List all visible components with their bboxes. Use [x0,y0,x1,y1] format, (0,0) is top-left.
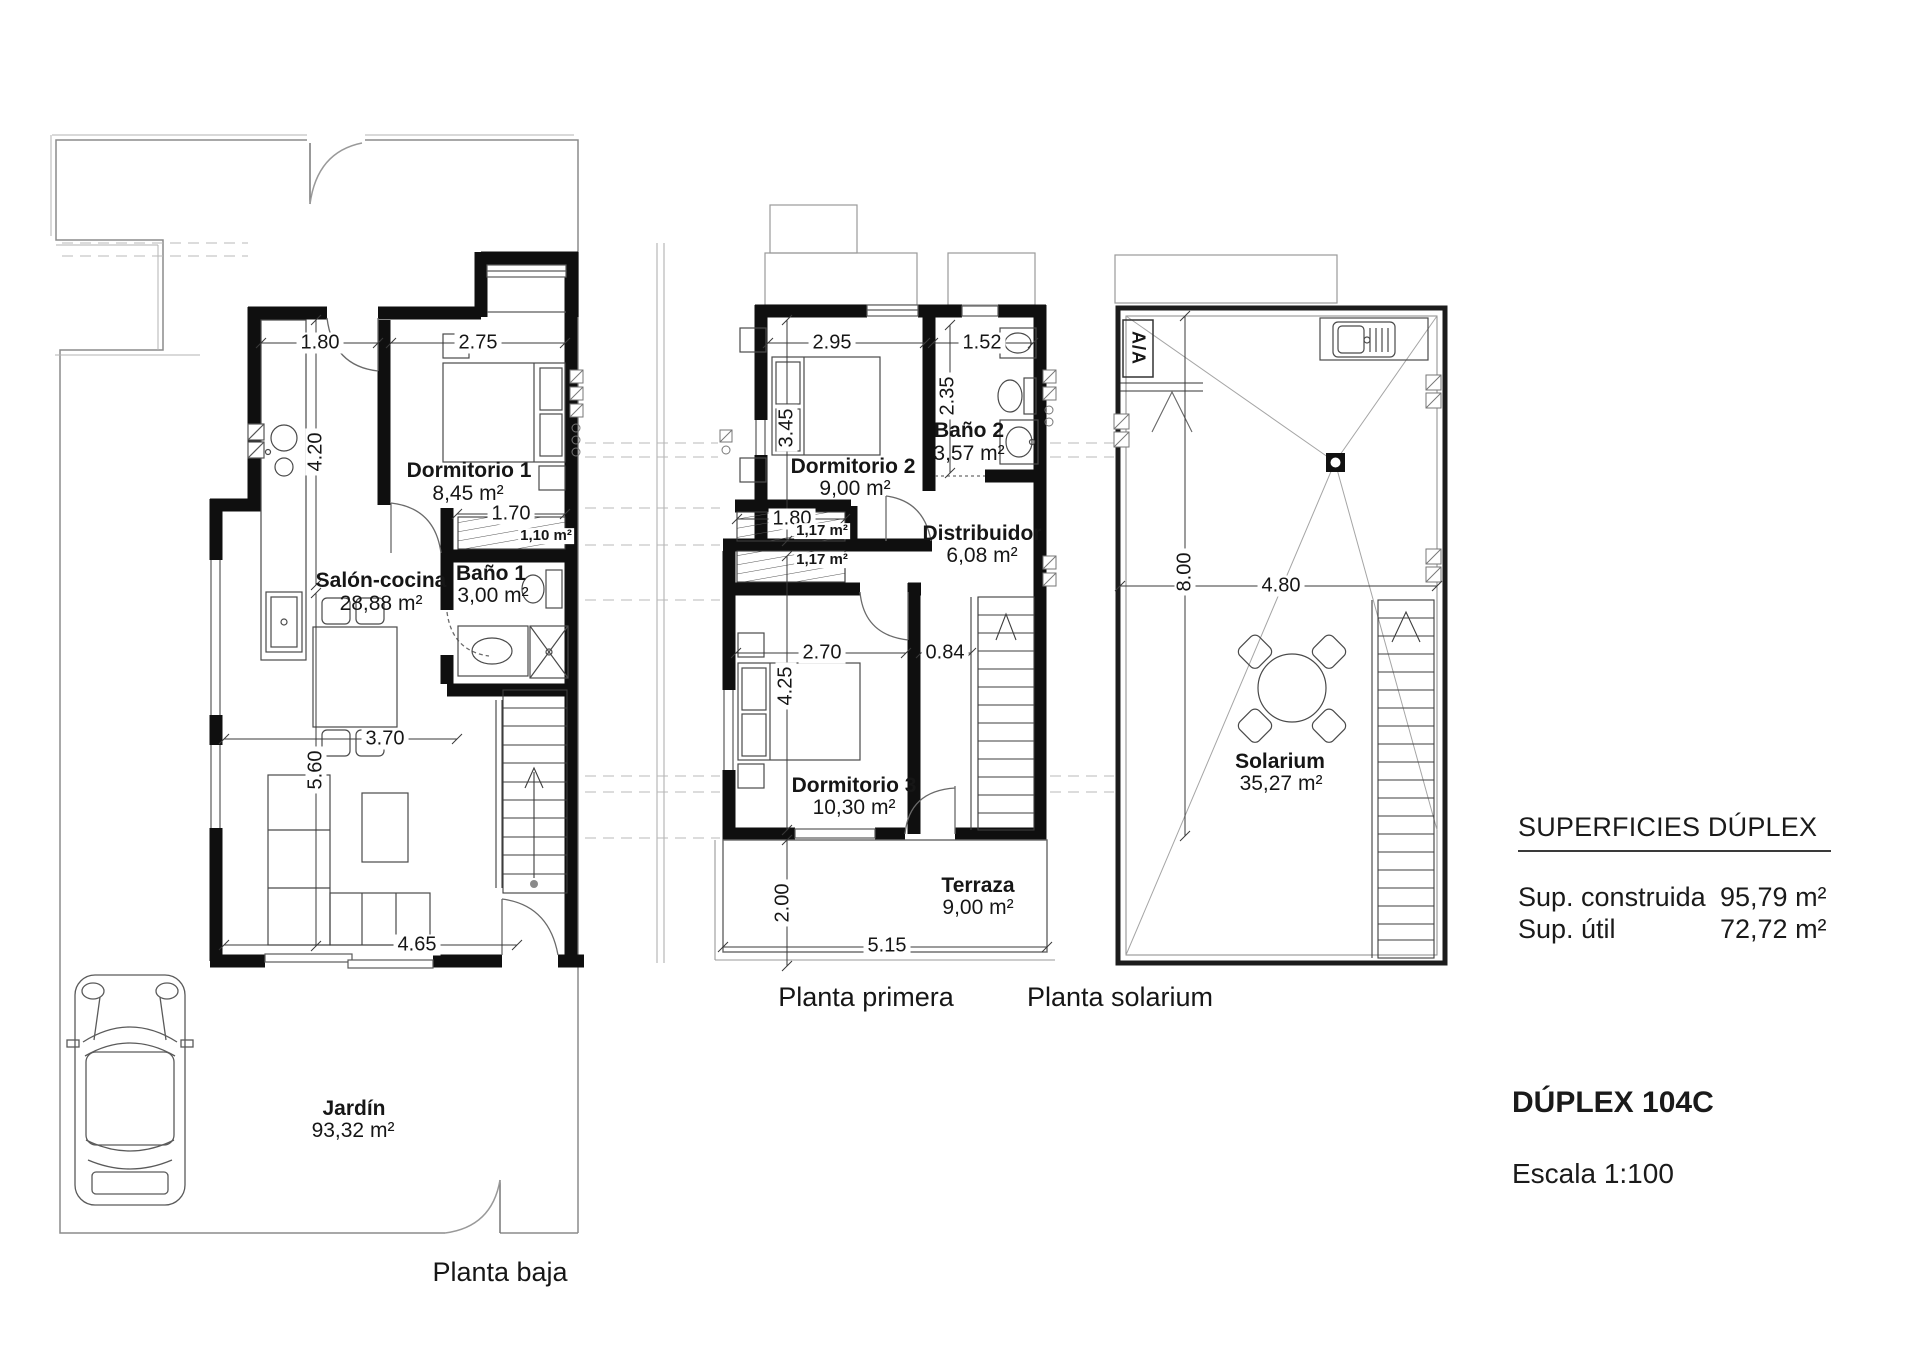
dim-label-dorm3-width: 2.70 [799,643,846,664]
room-area-escalera-baja: 1,10 m² [518,528,574,544]
planta-solarium-wall-symbols [1114,375,1441,582]
dim-label-dorm1-width: 2.75 [455,333,502,354]
room-label-solarium: Solarium [1235,751,1325,773]
dim-label-salon-inf-width: 4.65 [394,935,441,956]
room-area-escalera1: 1,17 m² [794,523,850,539]
room-label-dormitorio3: Dormitorio 3 [792,775,917,797]
plan-title-planta-solarium: Planta solarium [1027,983,1213,1011]
room-label-dormitorio2: Dormitorio 2 [791,456,916,478]
floorplan-sheet: 1.80 2.75 4.20 Dormitorio 1 8,45 m² 1.70… [0,0,1920,1356]
dim-label-solarium-width: 4.80 [1258,576,1305,597]
plan-title-planta-primera: Planta primera [778,983,954,1011]
surface-summary: SUPERFICIES DÚPLEX Sup. construida 95,79… [1518,812,1858,945]
dim-label-cocina-width: 1.80 [297,333,344,354]
planta-primera-roof-outline [765,205,1035,305]
floorplan-drawing [0,0,1920,1356]
summary-row-util: Sup. útil 72,72 m² [1518,914,1858,946]
summary-title: SUPERFICIES DÚPLEX [1518,812,1831,852]
planta-baja-dimension-lines [219,315,570,951]
scale-label: Escala 1:100 [1512,1158,1674,1190]
unit-name: DÚPLEX 104C [1512,1086,1714,1120]
dim-label-paso-width: 0.84 [922,643,969,664]
plan-title-planta-baja: Planta baja [432,1258,567,1286]
room-label-bano1: Baño 1 [456,563,526,585]
ac-unit-label: A/A [1129,331,1148,365]
room-area-jardin: 93,32 m² [312,1120,395,1142]
dim-label-dorm2-width: 2.95 [809,333,856,354]
summary-rows: Sup. construida 95,79 m² Sup. útil 72,72… [1518,882,1858,945]
dim-label-terraza-height: 2.00 [773,880,794,927]
room-area-distribuidor: 6,08 m² [946,545,1017,567]
summary-label-construida: Sup. construida [1518,882,1720,914]
room-area-salon-cocina: 28,88 m² [340,593,423,615]
dim-label-bano2-height: 2.35 [938,373,959,420]
summary-label-util: Sup. útil [1518,914,1720,946]
room-area-escalera2: 1,17 m² [794,552,850,568]
room-area-dormitorio3: 10,30 m² [813,797,896,819]
room-area-dormitorio2: 9,00 m² [819,478,890,500]
dim-label-salon-width: 3.70 [362,729,409,750]
summary-value-construida: 95,79 m² [1720,882,1827,914]
room-label-jardin: Jardín [322,1098,385,1120]
room-label-distribuidor: Distribuidor [923,523,1042,545]
planta-baja-salon-furniture [268,598,430,945]
planta-solarium-sink [1320,318,1428,360]
room-area-bano2: 3,57 m² [933,443,1004,465]
dim-label-dorm2-height: 3.45 [777,405,798,452]
room-area-solarium: 35,27 m² [1240,773,1323,795]
planta-solarium-stairs [1372,600,1434,958]
summary-value-util: 72,72 m² [1720,914,1827,946]
dim-label-escalera-width: 1.70 [488,504,535,525]
room-area-terraza: 9,00 m² [942,897,1013,919]
dim-label-solarium-height: 8.00 [1175,549,1196,596]
dim-label-bano2-width: 1.52 [959,333,1006,354]
planta-solarium-table [1236,633,1348,745]
planta-solarium-drain [1326,453,1345,472]
room-label-bano2: Baño 2 [934,420,1004,442]
car-top-view [67,975,193,1205]
dim-label-cocina-height: 4.20 [306,429,327,476]
dim-label-salon-height: 5.60 [306,747,327,794]
dim-label-dorm3-height: 4.25 [776,663,797,710]
planta-solarium-outline [1115,255,1445,963]
room-area-bano1: 3,00 m² [457,585,528,607]
dim-label-terraza-width: 5.15 [864,936,911,957]
summary-row-construida: Sup. construida 95,79 m² [1518,882,1858,914]
room-label-salon-cocina: Salón-cocina [316,570,447,592]
planta-primera-dimension-lines [718,315,1052,971]
room-label-dormitorio1: Dormitorio 1 [407,460,532,482]
room-label-terraza: Terraza [941,875,1014,897]
